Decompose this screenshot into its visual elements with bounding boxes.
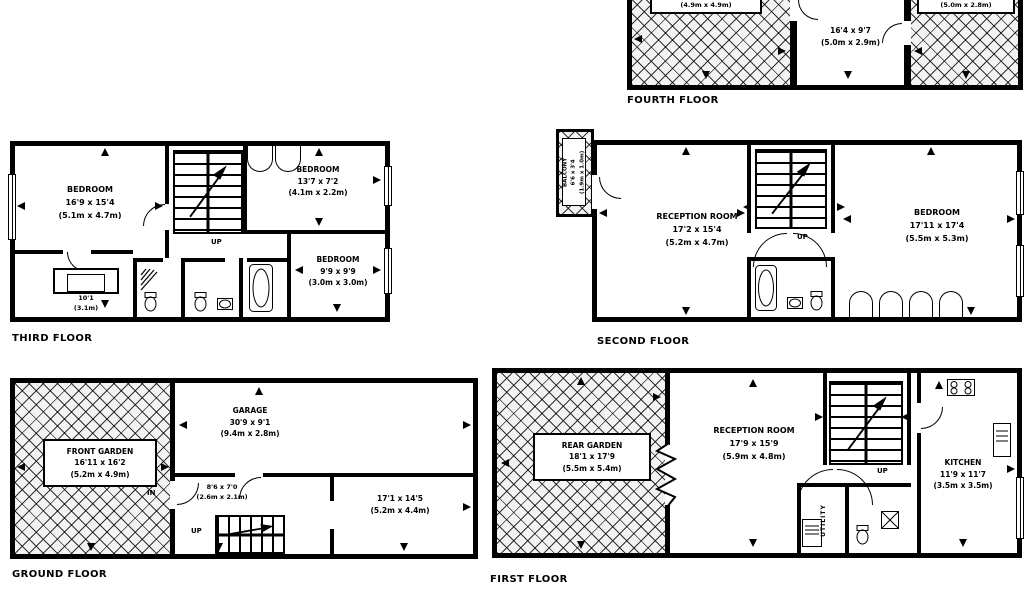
dimension-arrow — [843, 215, 851, 223]
ground-floor-plan: FRONT GARDEN 16'11 x 16'2 (5.2m x 4.9m) … — [10, 378, 478, 559]
closet-arc — [879, 291, 903, 317]
up-label: UP — [877, 467, 888, 475]
balcony-label-box: BALCONY 6'6 x 3'4 (1.9m x 1.0m) — [562, 138, 586, 206]
wall — [330, 529, 334, 554]
dimension-arrow — [749, 379, 757, 387]
dimension-arrow — [17, 463, 25, 471]
reception-label: RECEPTION ROOM 17'9 x 15'9 (5.9m x 4.8m) — [679, 425, 829, 463]
window — [1016, 477, 1024, 539]
wardrobe-arcs — [849, 291, 963, 317]
terrace-dim-box: (4.9m x 4.9m) — [650, 0, 762, 14]
dimension-arrow — [599, 209, 607, 217]
room-dim-m: (2.6m x 2.1m) — [183, 493, 261, 503]
door-arc — [798, 0, 818, 20]
first-floor-title: FIRST FLOOR — [490, 574, 568, 585]
dimension-arrow — [179, 421, 187, 429]
floorplan-sheet: (4.9m x 4.9m) (5.0m x 2.8m) 16'4 x 9'7 (… — [0, 0, 1024, 600]
door-arc — [921, 407, 943, 429]
bathtub-icon — [755, 265, 777, 311]
dimension-arrow — [315, 148, 323, 156]
staircase — [173, 150, 243, 234]
front-garden-label-box: FRONT GARDEN 16'11 x 16'2 (5.2m x 4.9m) — [43, 439, 157, 487]
dimension-arrow — [161, 463, 169, 471]
bedroom-label: BEDROOM 13'7 x 7'2 (4.1m x 2.2m) — [255, 164, 381, 199]
room-dim-ft: 17'2 x 15'4 — [622, 224, 772, 237]
dimension-arrow — [962, 71, 970, 79]
room-name: BEDROOM — [867, 207, 1007, 220]
dimension-arrow — [653, 393, 661, 401]
balcony-label: BALCONY 6'6 x 3'4 (1.9m x 1.0m) — [562, 150, 587, 193]
dimension-arrow — [1007, 215, 1015, 223]
dimension-arrow — [634, 35, 642, 43]
room-dim-m: (1.9m x 1.0m) — [578, 150, 586, 193]
wall — [287, 230, 291, 317]
wall — [91, 250, 133, 254]
bedroom-label: BEDROOM 16'9 x 15'4 (5.1m x 4.7m) — [27, 184, 153, 222]
dimension-arrow — [87, 543, 95, 551]
in-label: IN — [147, 489, 155, 497]
stairs-direction-arrow — [175, 152, 241, 232]
dimension-arrow — [315, 218, 323, 226]
sink-icon — [787, 297, 803, 309]
room-dim-m: (3.0m x 3.0m) — [295, 277, 381, 289]
dimension-arrow — [844, 71, 852, 79]
zigzag-break — [653, 443, 679, 507]
terrace-dim: (4.9m x 4.9m) — [652, 1, 760, 11]
fourth-floor-title: FOURTH FLOOR — [627, 95, 719, 106]
fourth-floor-plan: (4.9m x 4.9m) (5.0m x 2.8m) 16'4 x 9'7 (… — [627, 0, 1023, 90]
room-dim-ft: 17'11 x 17'4 — [867, 220, 1007, 233]
dimension-arrow — [682, 307, 690, 315]
staircase — [215, 515, 285, 554]
room-name: RECEPTION ROOM — [679, 425, 829, 438]
wall — [170, 383, 175, 481]
room-dim-m: (9.4m x 2.8m) — [180, 428, 320, 440]
room-dim-m: (5.2m x 4.4m) — [340, 505, 460, 517]
room-dim-m: (5.2m x 4.9m) — [45, 469, 155, 481]
up-label: UP — [211, 238, 222, 246]
washing-machine-icon — [802, 519, 822, 547]
room-dim-ft: 17'9 x 15'9 — [679, 438, 829, 451]
dimension-arrow — [577, 377, 585, 385]
wall — [917, 433, 921, 553]
stove-icon — [947, 379, 975, 396]
bathtub-icon — [249, 264, 273, 312]
room-name: KITCHEN — [919, 457, 1007, 469]
room-name: BEDROOM — [255, 164, 381, 176]
dimension-arrow — [682, 147, 690, 155]
wall — [133, 258, 163, 262]
second-floor-plan: UP RECEPTION ROOM 17'2 x 15'4 (5.2m x 4.… — [592, 140, 1022, 322]
room-dim-m: (5.9m x 4.8m) — [679, 451, 829, 464]
closet-arc — [849, 291, 873, 317]
wall — [247, 258, 287, 262]
balcony: BALCONY 6'6 x 3'4 (1.9m x 1.0m) — [556, 129, 594, 217]
bedroom-label: BEDROOM 17'11 x 17'4 (5.5m x 5.3m) — [867, 207, 1007, 245]
dimension-arrow — [901, 413, 909, 421]
dimension-arrow — [837, 203, 845, 211]
terrace-dim-box: (5.0m x 2.8m) — [917, 0, 1015, 14]
dimension-arrow — [373, 176, 381, 184]
dimension-arrow — [463, 503, 471, 511]
wall — [185, 258, 225, 262]
wall — [665, 505, 670, 553]
third-floor-title: THIRD FLOOR — [12, 333, 92, 344]
room-name: RECEPTION ROOM — [622, 211, 772, 224]
window — [1016, 245, 1024, 297]
sink-icon — [217, 298, 233, 310]
room-name: REAR GARDEN — [535, 440, 649, 452]
room-dim-ft: 16'9 x 15'4 — [27, 197, 153, 210]
room-dim-m: (3.5m x 3.5m) — [919, 480, 1007, 492]
closet-arc — [909, 291, 933, 317]
wall — [330, 473, 334, 501]
room-dim-ft: 11'9 x 11'7 — [919, 469, 1007, 481]
stairs-direction-arrow — [831, 383, 901, 463]
dimension-arrow — [967, 307, 975, 315]
room-dim-ft: 17'1 x 14'5 — [340, 493, 460, 505]
dimension-arrow — [295, 266, 303, 274]
window — [384, 248, 392, 294]
dimension-arrow — [749, 539, 757, 547]
stairs-direction-arrow — [217, 517, 283, 552]
room-dim-m: (5.1m x 4.7m) — [27, 210, 153, 223]
wall — [170, 509, 175, 554]
balcony-label-wrap: BALCONY 6'6 x 3'4 (1.9m x 1.0m) — [563, 139, 585, 205]
dressing-table-inner — [67, 274, 105, 292]
dimension-arrow — [501, 459, 509, 467]
dimension-arrow — [333, 304, 341, 312]
dimension-arrow — [743, 203, 751, 211]
dimension-arrow — [1007, 465, 1015, 473]
rear-garden-label-box: REAR GARDEN 18'1 x 17'9 (5.5m x 5.4m) — [533, 433, 651, 481]
dimension-arrow — [155, 202, 163, 210]
room-name: BEDROOM — [295, 254, 381, 266]
wall — [133, 258, 137, 317]
room-dim-ft: 18'1 x 17'9 — [535, 451, 649, 463]
dimension-arrow — [463, 421, 471, 429]
room-name: FRONT GARDEN — [45, 446, 155, 458]
window — [8, 174, 16, 240]
wall — [823, 373, 827, 465]
wall — [917, 373, 921, 403]
shower-spray-icon — [139, 266, 161, 292]
closet-arc — [939, 291, 963, 317]
room-dim-m: (5.2m x 4.7m) — [622, 237, 772, 250]
door-arc — [599, 177, 621, 199]
kitchen-label: KITCHEN 11'9 x 11'7 (3.5m x 3.5m) — [919, 457, 1007, 492]
dimension-arrow — [215, 543, 223, 551]
dim-ft: 10'1 — [53, 294, 119, 304]
second-floor-title: SECOND FLOOR — [597, 336, 689, 347]
room-name: GARAGE — [180, 405, 320, 417]
wall — [831, 145, 835, 233]
dimension-arrow — [914, 47, 922, 55]
room-dim-ft: 16'11 x 16'2 — [45, 457, 155, 469]
garage-label: GARAGE 30'9 x 9'1 (9.4m x 2.8m) — [180, 405, 320, 440]
wall — [747, 257, 751, 317]
fridge-icon — [993, 423, 1011, 457]
up-label: UP — [191, 527, 202, 535]
dim-m: (3.1m) — [53, 304, 119, 314]
dimension-arrow — [17, 202, 25, 210]
wall — [243, 230, 385, 234]
wall — [797, 483, 911, 487]
wall — [181, 258, 185, 317]
room-dim-ft: 13'7 x 7'2 — [255, 176, 381, 188]
rear-room-dim-label: 17'1 x 14'5 (5.2m x 4.4m) — [340, 493, 460, 516]
room-dim-ft: 30'9 x 9'1 — [180, 417, 320, 429]
staircase — [829, 381, 903, 465]
room-dim-ft: 16'4 x 9'7 — [797, 25, 904, 37]
dimension-arrow — [400, 543, 408, 551]
wall — [175, 473, 235, 477]
dimension-arrow — [101, 148, 109, 156]
dimension-arrow — [927, 147, 935, 155]
room-name: BEDROOM — [27, 184, 153, 197]
dimension-arrow — [373, 266, 381, 274]
reception-label: RECEPTION ROOM 17'2 x 15'4 (5.2m x 4.7m) — [622, 211, 772, 249]
window — [1016, 171, 1024, 215]
wall — [165, 146, 169, 204]
door-arc — [793, 233, 827, 267]
door-opening — [592, 175, 597, 209]
dimension-arrow — [935, 381, 943, 389]
wall — [15, 250, 63, 254]
door-opening — [904, 21, 911, 45]
ground-floor-title: GROUND FLOOR — [12, 569, 107, 580]
room-dim-m: (5.5m x 5.3m) — [867, 233, 1007, 246]
room-dim-ft: 9'9 x 9'9 — [295, 266, 381, 278]
dimension-arrow — [255, 387, 263, 395]
hall-dim-label: 8'6 x 7'0 (2.6m x 2.1m) — [183, 483, 261, 503]
wall — [165, 230, 169, 258]
dimension-arrow — [815, 413, 823, 421]
room-dim-ft: 8'6 x 7'0 — [183, 483, 261, 493]
terrace-dim: (5.0m x 2.8m) — [919, 1, 1013, 11]
room-dim-m: (5.0m x 2.9m) — [797, 37, 904, 49]
toilet-icon — [855, 525, 870, 545]
toilet-icon — [143, 292, 158, 312]
door-opening — [790, 0, 797, 21]
wall — [263, 473, 473, 477]
third-floor-plan: UP BEDROOM 16'9 x 15'4 (5.1m x 4.7m) BED… — [10, 141, 390, 322]
dimension-arrow — [101, 300, 109, 308]
wall — [239, 258, 243, 317]
toilet-icon — [193, 292, 208, 312]
first-floor-plan: REAR GARDEN 18'1 x 17'9 (5.5m x 5.4m) RE… — [492, 368, 1022, 558]
shower-tray-icon — [881, 511, 899, 529]
toilet-icon — [809, 291, 824, 311]
dimension-arrow — [778, 47, 786, 55]
dimension-arrow — [702, 71, 710, 79]
window — [384, 166, 392, 206]
dimension-arrow — [577, 541, 585, 549]
roof-room-label: 16'4 x 9'7 (5.0m x 2.9m) — [797, 25, 904, 48]
dressing-dim-label: 10'1 (3.1m) — [53, 294, 119, 314]
room-dim-m: (4.1m x 2.2m) — [255, 187, 381, 199]
wall — [831, 257, 835, 317]
dimension-arrow — [959, 539, 967, 547]
wall — [665, 373, 670, 445]
bedroom-label: BEDROOM 9'9 x 9'9 (3.0m x 3.0m) — [295, 254, 381, 289]
room-dim-m: (5.5m x 5.4m) — [535, 463, 649, 475]
